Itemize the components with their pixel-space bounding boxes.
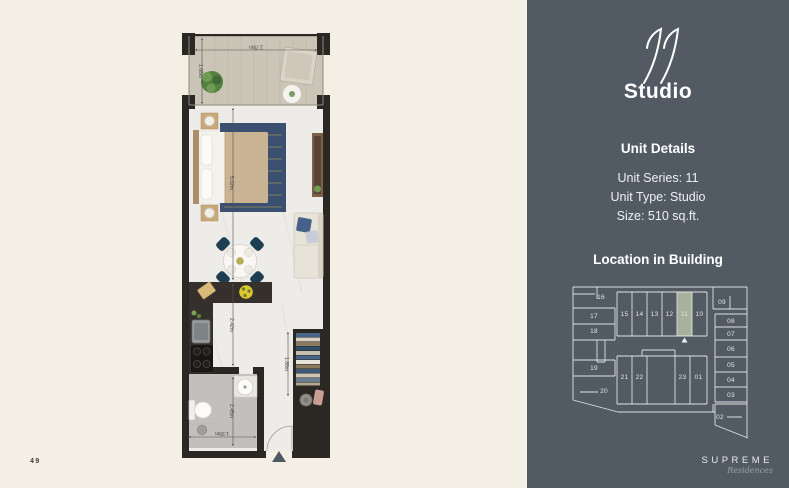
bed bbox=[193, 130, 268, 204]
dim-balcony-width: 2.78m bbox=[249, 44, 263, 50]
lounge-chair bbox=[280, 47, 317, 85]
page-number: 49 bbox=[30, 458, 41, 465]
location-heading: Location in Building bbox=[527, 252, 789, 267]
unit-label: 06 bbox=[727, 346, 735, 353]
unit-label: 15 bbox=[621, 311, 629, 318]
dim-kitchen-length: 2.42m bbox=[228, 318, 234, 332]
unit-series-line: Unit Series: 11 bbox=[527, 169, 789, 188]
unit-label: 12 bbox=[666, 311, 674, 318]
brochure-page: 49 bbox=[0, 0, 789, 488]
unit-label: 18 bbox=[590, 328, 598, 335]
unit-label: 14 bbox=[636, 311, 644, 318]
plant-icon bbox=[201, 71, 223, 93]
unit-label: 03 bbox=[727, 392, 735, 399]
unit-label: 02 bbox=[716, 414, 724, 421]
unit-label: 21 bbox=[621, 374, 629, 381]
floor-plan: 2.78m 1.68m 5.02m 2.42m 2.45m 1.99m 1.88… bbox=[182, 33, 330, 458]
tv-console bbox=[312, 133, 323, 197]
unit-label: 20 bbox=[600, 388, 608, 395]
unit-type-line: Unit Type: Studio bbox=[527, 188, 789, 207]
unit-info-panel: Studio Unit Details Unit Series: 11 Unit… bbox=[527, 0, 789, 488]
unit-type-title: Studio bbox=[527, 80, 789, 104]
brand-script: Residences bbox=[702, 467, 773, 475]
unit-size-line: Size: 510 sq.ft. bbox=[527, 207, 789, 226]
floor-plan-drawing: 2.78m 1.68m 5.02m 2.42m 2.45m 1.99m 1.88… bbox=[182, 33, 330, 458]
unit-details-heading: Unit Details bbox=[527, 141, 789, 156]
nightstand-bottom bbox=[201, 205, 218, 221]
dim-balcony-depth: 1.68m bbox=[197, 64, 203, 78]
unit-label: 17 bbox=[590, 313, 598, 320]
unit-label: 19 bbox=[590, 365, 598, 372]
unit-label: 04 bbox=[727, 377, 735, 384]
unit-label: 08 bbox=[727, 318, 735, 325]
building-location-diagram: 16 17 18 19 20 15 14 13 12 11 10 09 08 0… bbox=[570, 286, 750, 440]
nightstand-top bbox=[201, 113, 218, 129]
unit-label: 09 bbox=[718, 299, 726, 306]
unit-label: 10 bbox=[696, 311, 704, 318]
side-table bbox=[283, 85, 302, 104]
unit-label: 16 bbox=[597, 294, 605, 301]
unit-entry-marker bbox=[682, 338, 688, 343]
unit-label: 01 bbox=[695, 374, 703, 381]
sofa bbox=[294, 213, 323, 278]
dim-bath-width: 1.99m bbox=[215, 430, 229, 436]
dim-wardrobe-length: 1.88m bbox=[283, 357, 289, 371]
brand-name: SUPREME bbox=[702, 456, 773, 466]
unit-label: 13 bbox=[651, 311, 659, 318]
unit-label: 07 bbox=[727, 331, 735, 338]
unit-label: 05 bbox=[727, 362, 735, 369]
dim-room-length: 5.02m bbox=[228, 176, 234, 190]
entrance-marker bbox=[272, 451, 286, 462]
unit-series-script bbox=[623, 26, 693, 88]
unit-label-highlighted: 11 bbox=[681, 311, 688, 318]
unit-label: 22 bbox=[636, 374, 644, 381]
dim-bath-length: 2.45m bbox=[228, 404, 234, 418]
unit-label: 23 bbox=[679, 374, 687, 381]
unit-details: Unit Series: 11 Unit Type: Studio Size: … bbox=[527, 169, 789, 226]
building-unit-labels: 16 17 18 19 20 15 14 13 12 11 10 09 08 0… bbox=[590, 294, 735, 421]
brand-logo: SUPREME Residences bbox=[702, 456, 773, 475]
